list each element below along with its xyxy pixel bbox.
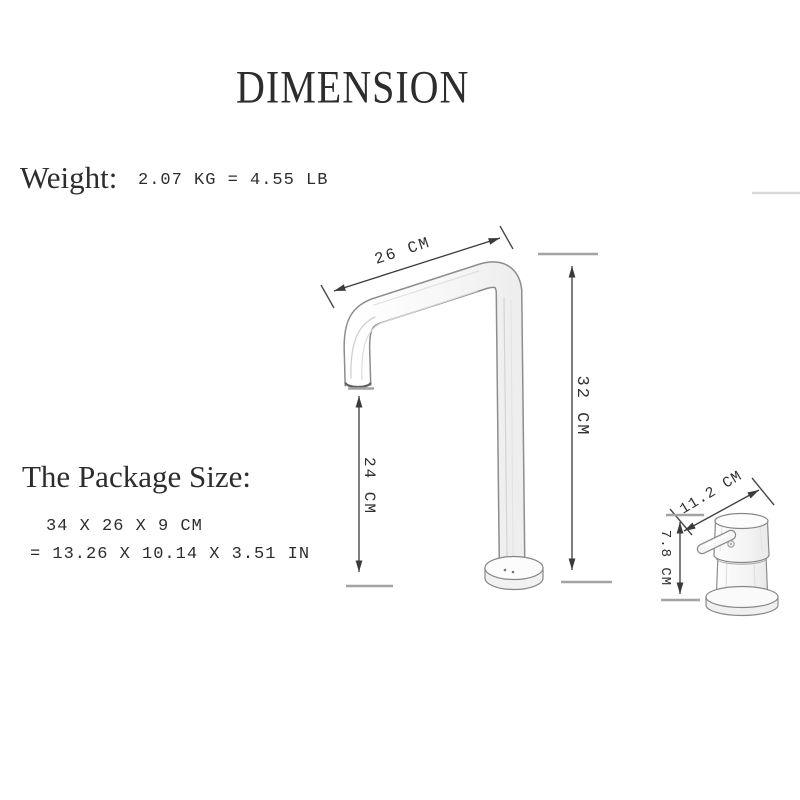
extension-tick bbox=[500, 226, 513, 249]
dimension-label-7-8cm: 7.8 CM bbox=[657, 530, 673, 586]
dimension-sheet: DIMENSION Weight: 2.07 KG = 4.55 LB The … bbox=[0, 0, 800, 800]
handle-top-cap bbox=[715, 514, 768, 529]
handle-flange-top bbox=[706, 587, 778, 608]
extension-tick bbox=[321, 285, 334, 308]
base-detail-dot bbox=[512, 571, 515, 574]
dimension-handle-height: 7.8 CM bbox=[657, 515, 704, 600]
dimension-spout-clearance: 24 CM bbox=[346, 389, 393, 587]
dimension-label-24cm: 24 CM bbox=[360, 457, 378, 515]
faucet-base-top bbox=[485, 557, 543, 580]
dimension-label-32cm: 32 CM bbox=[572, 375, 591, 436]
faucet-base bbox=[485, 557, 543, 590]
faucet-drawing bbox=[346, 271, 544, 590]
dimension-label-26cm: 26 CM bbox=[372, 234, 433, 269]
base-detail-dot bbox=[504, 569, 507, 572]
dimension-total-height: 32 CM bbox=[538, 254, 612, 582]
dimension-diagram: 26 CM 32 CM 24 CM 11.2 CM 7. bbox=[0, 0, 800, 800]
dimension-label-11-2cm: 11.2 CM bbox=[677, 468, 746, 519]
spout-tube-body bbox=[357, 275, 512, 560]
handle-drawing bbox=[702, 514, 778, 616]
handle-screw-dot bbox=[730, 543, 732, 545]
